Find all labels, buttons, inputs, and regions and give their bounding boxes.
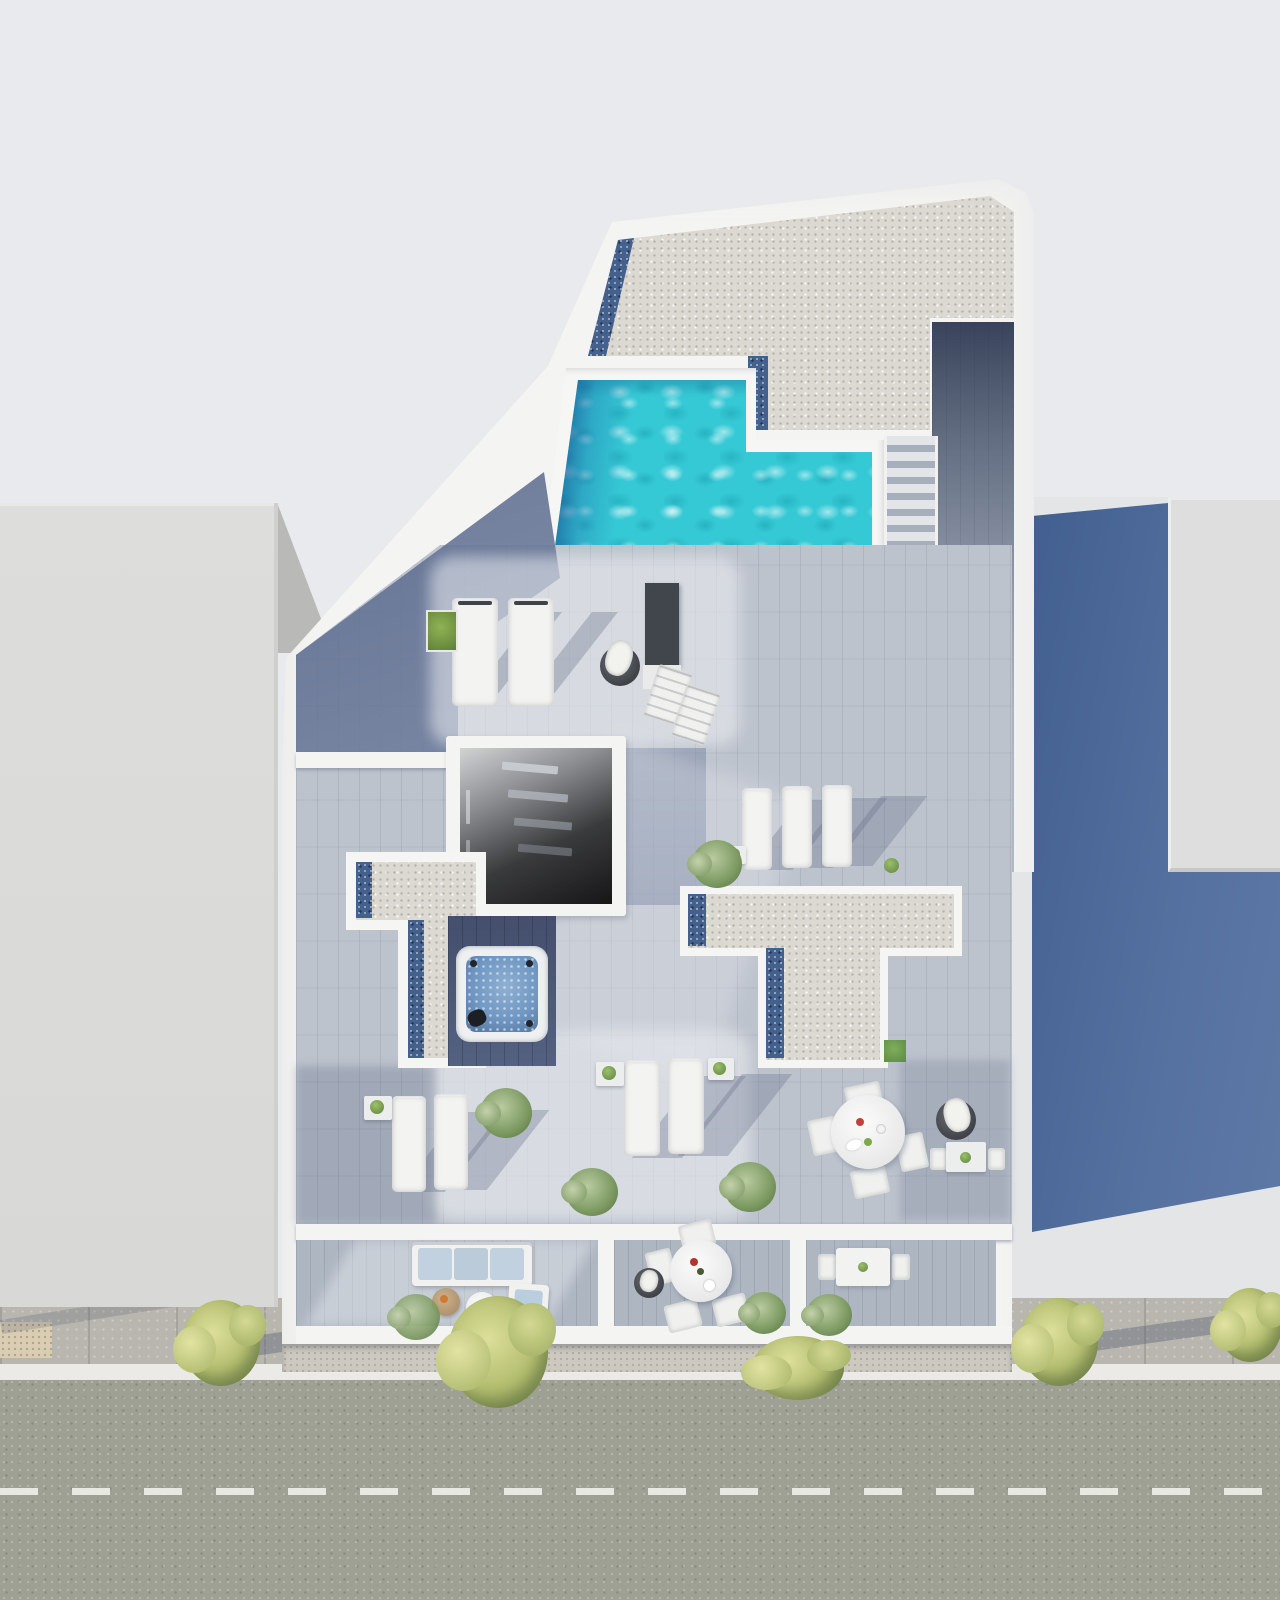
small-chair (988, 1148, 1005, 1170)
round-dining-table (831, 1095, 905, 1169)
sofa-cushion (490, 1248, 524, 1280)
jacuzzi-jet (526, 1020, 533, 1027)
table-item-orange (440, 1295, 448, 1303)
small-chair (818, 1254, 836, 1280)
sun-lounger (668, 1058, 704, 1154)
sun-lounger (742, 788, 772, 870)
gravel-skylight-strip (688, 894, 706, 946)
deck-plant (692, 840, 742, 888)
table-item-plate (704, 1280, 715, 1291)
interior-wall (296, 752, 448, 768)
sun-lounger (782, 786, 812, 868)
plant-pot (884, 858, 899, 873)
left-neighbor-building-roof (0, 503, 278, 1307)
right-building-roof-block (1168, 497, 1280, 872)
balcony-plant (392, 1294, 440, 1340)
planter-box (426, 610, 458, 652)
sun-lounger (624, 1060, 660, 1156)
gravel-skylight-strip (408, 920, 424, 1058)
right-building-complex (1012, 497, 1280, 1298)
sun-lounger (434, 1094, 468, 1190)
sunbed (508, 598, 554, 706)
street-facade-top (282, 1344, 1012, 1372)
deck-plant (724, 1162, 776, 1212)
jacuzzi-jet (526, 960, 533, 967)
aerial-render-stage (0, 0, 1280, 1600)
table-item-red (690, 1258, 698, 1266)
small-chair (892, 1254, 910, 1280)
small-chair (930, 1148, 947, 1170)
deck-plant (480, 1088, 532, 1138)
sofa-cushion (454, 1248, 488, 1280)
table-item-green (697, 1268, 704, 1275)
street-tree (1020, 1298, 1098, 1386)
balcony-plant (742, 1292, 786, 1334)
table-item-cup (876, 1124, 886, 1134)
balcony-inner-wall (296, 1224, 1012, 1240)
plant-pot (960, 1152, 971, 1163)
grass-patch (884, 1040, 906, 1062)
street-center-dashed-line (0, 1488, 1280, 1495)
deck-plant (566, 1168, 618, 1216)
jacuzzi-jet (470, 960, 477, 967)
gravel-skylight-strip (356, 862, 372, 918)
balcony-divider-wall (598, 1224, 614, 1326)
balcony-plant (806, 1294, 852, 1336)
sunbed (452, 598, 498, 706)
street-tree (752, 1336, 844, 1400)
outdoor-shower-panel (645, 583, 679, 667)
jacuzzi-tub (456, 946, 548, 1042)
pool-stairs (884, 436, 938, 548)
plant-pot (370, 1100, 384, 1114)
street-tree (448, 1296, 548, 1408)
table-item-red (856, 1118, 864, 1126)
street-tree (182, 1300, 260, 1386)
plant-pot (713, 1062, 726, 1075)
street-tree (1218, 1288, 1280, 1362)
plant-pot (602, 1066, 616, 1080)
table-item-green (864, 1138, 872, 1146)
plant-pot (858, 1262, 868, 1272)
sun-lounger (822, 785, 852, 867)
sofa-cushion (418, 1248, 452, 1280)
gravel-skylight-strip (766, 948, 784, 1058)
sun-lounger (392, 1096, 426, 1192)
